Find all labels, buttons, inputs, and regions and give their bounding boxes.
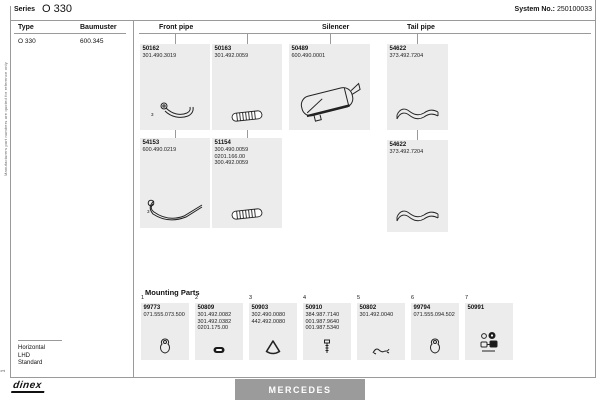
part-refs: 373.492.7204 — [387, 53, 448, 59]
part-number: 50489 — [289, 44, 370, 53]
column-front-pipe: Front pipe — [159, 24, 193, 31]
baumuster-header: Baumuster — [80, 24, 117, 31]
part-box-54622[interactable]: 54622 373.492.7204 — [387, 44, 448, 130]
part-refs: 301.492.0040 — [357, 312, 405, 318]
connector-line — [175, 33, 176, 44]
series-label: Series — [14, 6, 35, 13]
mounting-index: 7 — [465, 295, 468, 301]
mounting-box-50991[interactable]: 50991 — [465, 303, 513, 360]
flex-pipe-icon — [212, 206, 282, 222]
mounting-index: 1 — [141, 295, 144, 301]
mounting-box-50809[interactable]: 50809 301.492.0082 301.492.0382 0201.175… — [195, 303, 243, 360]
mounting-index: 2 — [195, 295, 198, 301]
left-border — [10, 6, 11, 377]
part-number: 99794 — [411, 303, 459, 312]
mounting-box-50802[interactable]: 50802 301.492.0040 — [357, 303, 405, 360]
part-number: 54153 — [140, 138, 210, 147]
catalog-sheet: Manufacturers part numbers are quoted fo… — [0, 0, 600, 400]
bottom-rule — [10, 377, 596, 378]
system-number-label: System No.: — [515, 6, 555, 13]
gasket-ring-icon — [249, 339, 297, 355]
mounting-index: 3 — [249, 295, 252, 301]
dinex-logo: dinex — [11, 380, 45, 393]
part-number: 50903 — [249, 303, 297, 312]
mounting-index: 6 — [411, 295, 414, 301]
mounting-index: 5 — [357, 295, 360, 301]
series-value: O 330 — [42, 3, 72, 15]
mounting-index: 4 — [303, 295, 306, 301]
system-number-value: 250100033 — [557, 6, 592, 13]
hanger-icon — [411, 336, 459, 355]
part-refs: 071.555.073.500 — [141, 312, 189, 318]
connector-line — [330, 33, 331, 44]
part-refs: 302.490.0080 442.492.0080 — [249, 312, 297, 325]
part-number: 50802 — [357, 303, 405, 312]
part-box-50489[interactable]: 50489 600.490.0001 — [289, 44, 370, 130]
type-value: O 330 — [18, 38, 36, 45]
mounting-box-50903[interactable]: 50903 302.490.0080 442.492.0080 — [249, 303, 297, 360]
connector-line — [417, 130, 418, 140]
part-refs: 301.492.0082 301.492.0382 0201.175.00 — [195, 312, 243, 331]
column-tail-pipe: Tail pipe — [407, 24, 435, 31]
tail-pipe-icon — [387, 204, 448, 226]
part-refs: 301.492.0059 — [212, 53, 282, 59]
connector-line — [175, 130, 176, 138]
clamp-icon — [195, 345, 243, 355]
part-refs: 071.555.094.502 — [411, 312, 459, 318]
part-number: 50991 — [465, 303, 513, 312]
part-number: 50162 — [140, 44, 210, 53]
mounting-parts-title: Mounting Parts — [145, 288, 200, 297]
mounting-box-99773[interactable]: 99773 071.555.073.500 — [141, 303, 189, 360]
long-pipe-icon — [140, 194, 210, 222]
part-refs: 600.490.0001 — [289, 53, 370, 59]
column-silencer: Silencer — [322, 24, 349, 31]
column-head-rule — [139, 33, 591, 34]
page-marker: 1 — [0, 370, 6, 373]
flex-pipe-icon — [212, 108, 282, 124]
part-number: 50910 — [303, 303, 351, 312]
right-border — [595, 0, 596, 377]
part-number: 51154 — [212, 138, 282, 147]
header-rule — [10, 20, 596, 21]
part-box-50162[interactable]: 50162 301.490.3019 3 — [140, 44, 210, 130]
part-box-51154[interactable]: 51154 300.490.0059 0201.166.00 300.492.0… — [212, 138, 282, 228]
part-refs: 301.490.3019 — [140, 53, 210, 59]
silencer-icon — [289, 78, 370, 124]
fitting-kit-icon — [465, 331, 513, 355]
tail-pipe-icon — [387, 102, 448, 124]
front-pipe-icon — [140, 98, 210, 124]
part-refs: 300.490.0059 0201.166.00 300.492.0059 — [212, 147, 282, 166]
hanger-icon — [141, 336, 189, 355]
part-refs: 384.987.7140 001.987.9640 001.987.5340 — [303, 312, 351, 331]
system-number: System No.: 250100033 — [515, 6, 592, 13]
type-head-rule — [14, 33, 126, 34]
part-box-54153[interactable]: 54153 600.490.0219 3 — [140, 138, 210, 228]
config-list: Horizontal LHD Standard — [18, 345, 45, 368]
part-refs: 600.490.0219 — [140, 147, 210, 153]
connector-line — [247, 130, 248, 138]
brand-label: MERCEDES — [268, 385, 331, 395]
mounting-box-50910[interactable]: 50910 384.987.7140 001.987.9640 001.987.… — [303, 303, 351, 360]
connector-line — [247, 33, 248, 44]
side-note: Manufacturers part numbers are quoted fo… — [3, 62, 8, 176]
part-box-54622-b[interactable]: 54622 373.492.7204 — [387, 140, 448, 232]
u-clamp-icon — [357, 345, 405, 355]
part-number: 54622 — [387, 140, 448, 149]
type-header: Type — [18, 24, 34, 31]
part-number: 99773 — [141, 303, 189, 312]
baumuster-value: 600.345 — [80, 38, 104, 45]
part-box-50163[interactable]: 50163 301.492.0059 — [212, 44, 282, 130]
part-number: 50809 — [195, 303, 243, 312]
brand-bar: MERCEDES — [235, 379, 365, 400]
bolt-icon — [303, 339, 351, 355]
part-number: 50163 — [212, 44, 282, 53]
connector-line — [417, 33, 418, 44]
part-number: 54622 — [387, 44, 448, 53]
panel-divider — [133, 20, 134, 377]
part-refs: 373.492.7204 — [387, 149, 448, 155]
config-rule — [18, 340, 62, 341]
mounting-box-99794[interactable]: 99794 071.555.094.502 — [411, 303, 459, 360]
